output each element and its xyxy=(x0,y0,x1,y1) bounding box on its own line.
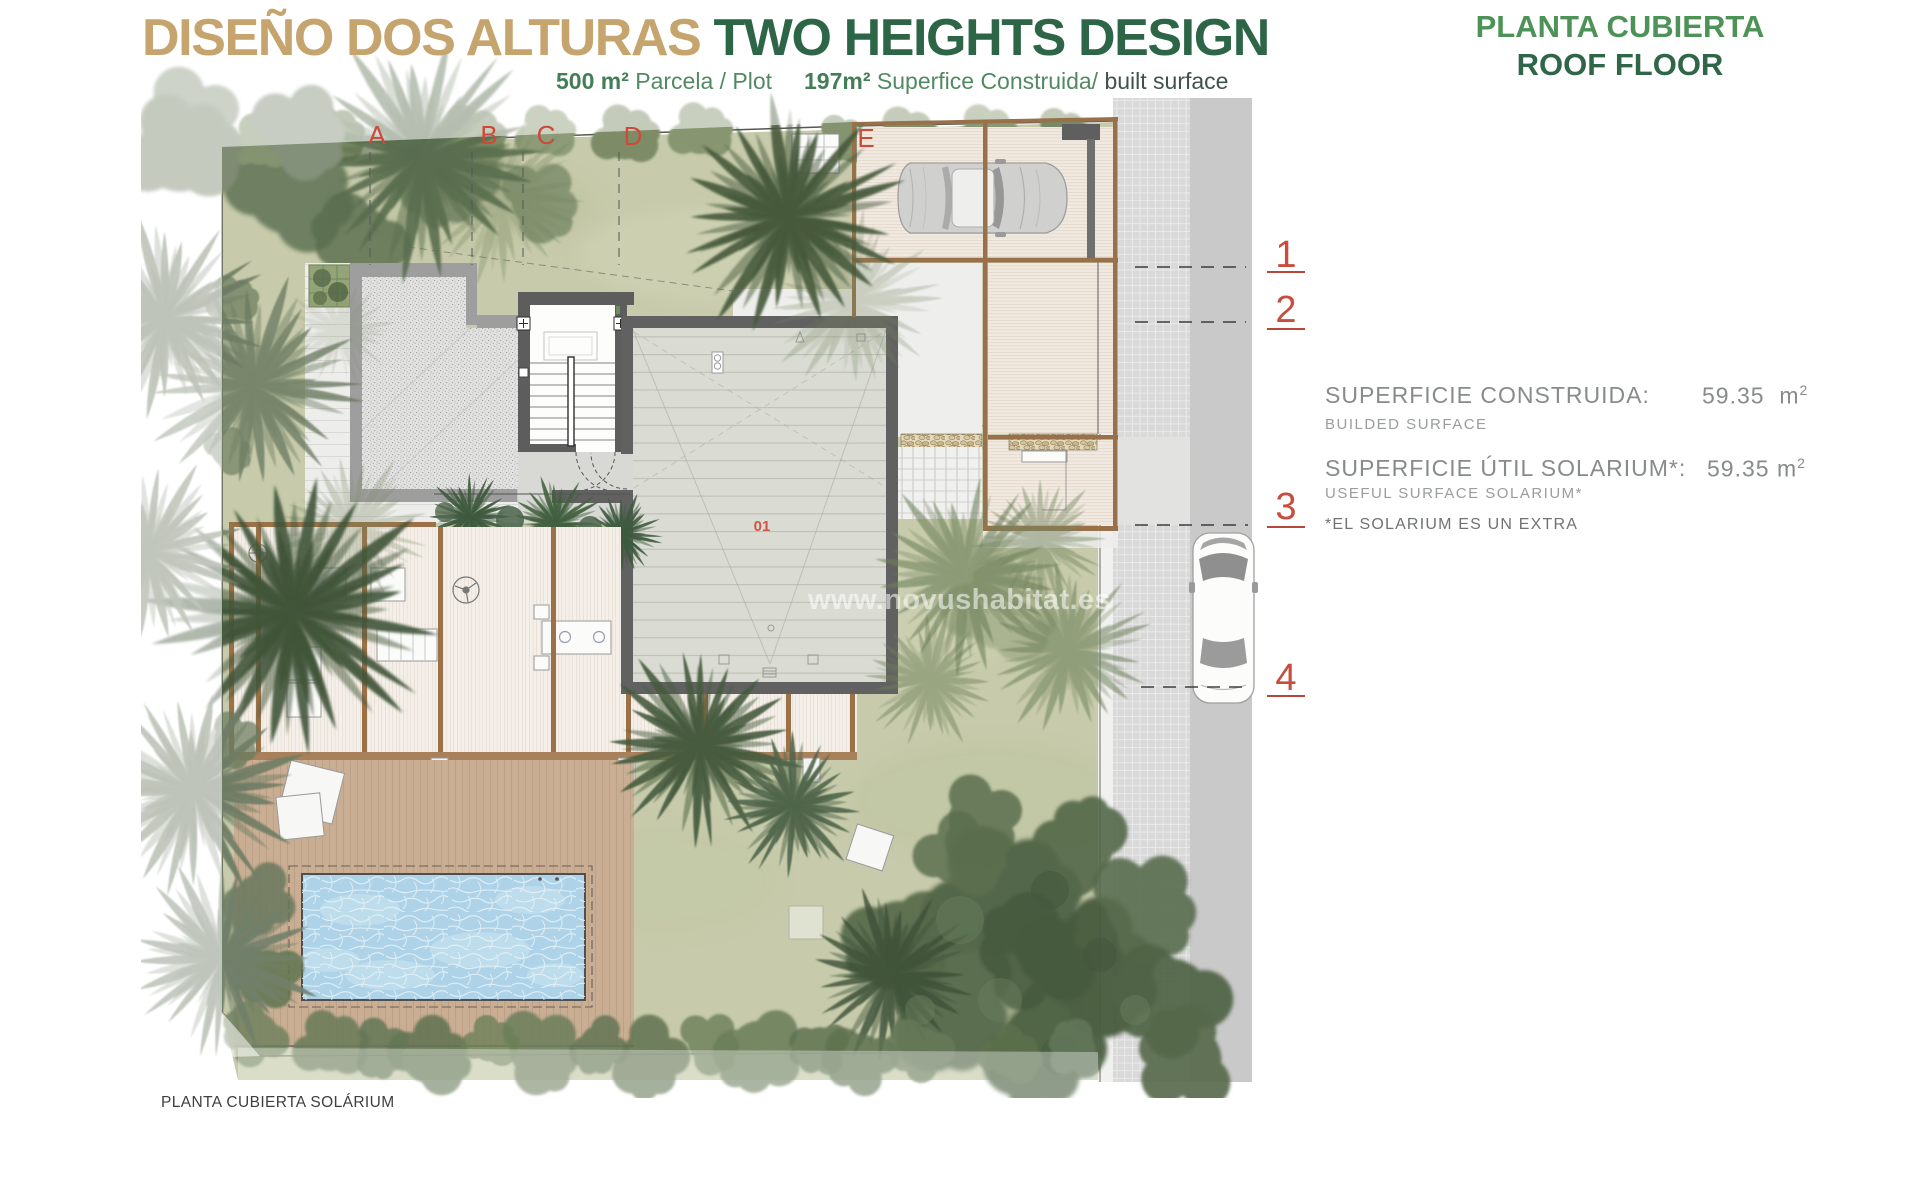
svg-text:1: 1 xyxy=(1275,234,1296,276)
svg-text:4: 4 xyxy=(1275,657,1296,699)
svg-text:2: 2 xyxy=(1275,289,1296,331)
svg-text:3: 3 xyxy=(1275,486,1296,528)
svg-text:A: A xyxy=(368,120,386,150)
svg-text:C: C xyxy=(537,120,556,150)
svg-text:D: D xyxy=(624,121,643,151)
svg-text:B: B xyxy=(480,120,497,150)
svg-text:www.novushabitat.es: www.novushabitat.es xyxy=(807,584,1111,616)
svg-text:E: E xyxy=(857,123,874,153)
svg-text:01: 01 xyxy=(754,518,771,535)
